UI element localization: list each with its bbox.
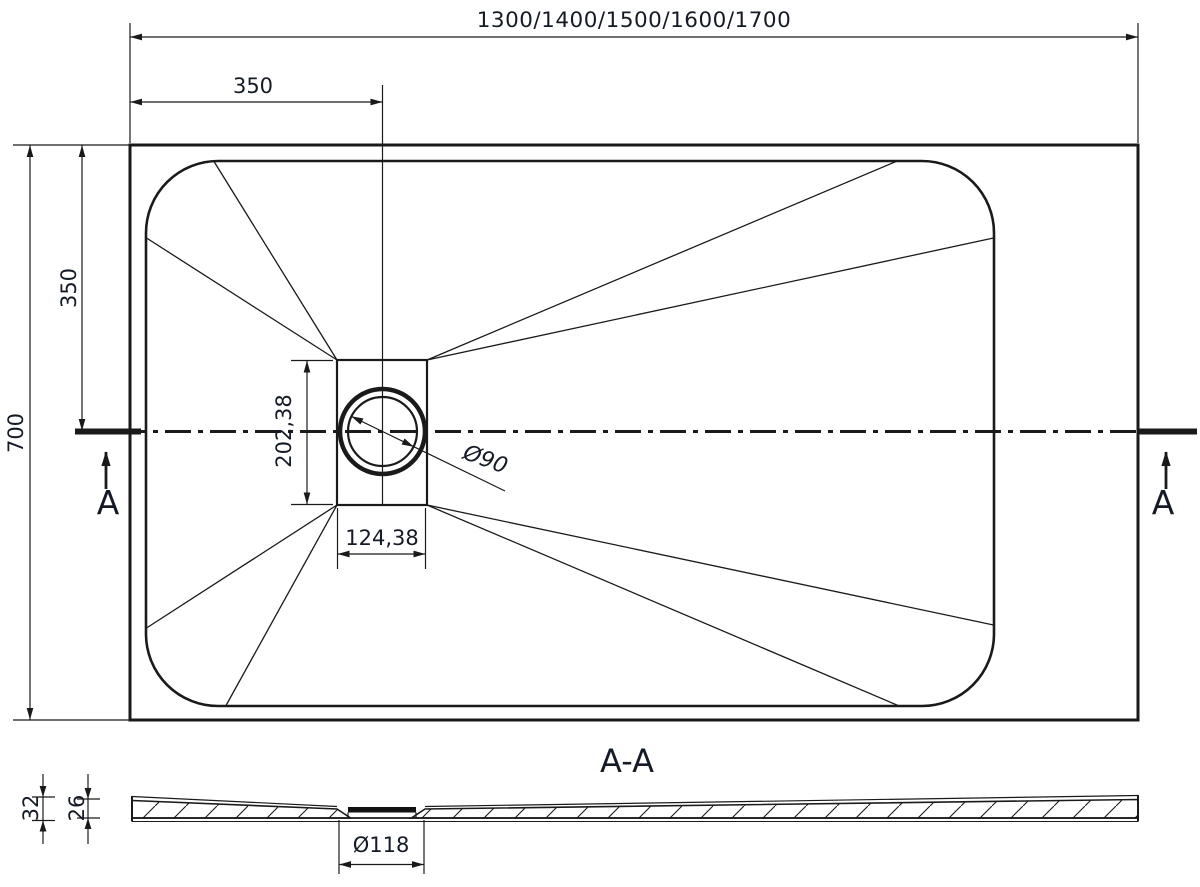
overall-width-label: 1300/1400/1500/1600/1700: [477, 8, 792, 33]
dim-recess-width: 124,38: [338, 508, 426, 569]
drain-hole-diameter-label: Ø118: [353, 833, 410, 857]
section-body-left: [132, 801, 351, 819]
section-marker-left-label: A: [97, 483, 120, 522]
top-view: Ø90 1300/1400/1500/1600/1700 350 700 350: [4, 8, 1197, 720]
dim-overall-width: 1300/1400/1500/1600/1700: [130, 8, 1138, 143]
section-marker-right-label: A: [1152, 483, 1175, 522]
section-body-right: [412, 800, 1139, 819]
drain-offset-y-label: 350: [57, 268, 81, 308]
section-drain-plate: [348, 807, 416, 813]
section-view: A-A Ø118 32: [19, 742, 1138, 874]
dim-edge-height: 32: [19, 774, 55, 844]
dim-drain-offset-x: 350: [131, 74, 383, 102]
recess-width-label: 124,38: [345, 526, 418, 550]
dim-drain-hole: Ø118: [339, 820, 424, 874]
section-title: A-A: [600, 742, 654, 780]
drain-offset-x-label: 350: [233, 74, 273, 98]
recess-height-label: 202,38: [272, 394, 296, 467]
drain-diameter-label: Ø90: [459, 440, 511, 479]
dim-body-height: 26: [65, 774, 100, 844]
technical-drawing-page: Ø90 1300/1400/1500/1600/1700 350 700 350: [0, 0, 1200, 887]
depth-label: 700: [4, 413, 28, 453]
body-height-label: 26: [65, 795, 89, 822]
section-marker-right: A: [1138, 432, 1197, 523]
dim-drain-offset-y: 350: [57, 146, 82, 431]
edge-height-label: 32: [19, 795, 43, 822]
shower-tray-drawing: Ø90 1300/1400/1500/1600/1700 350 700 350: [0, 0, 1200, 887]
